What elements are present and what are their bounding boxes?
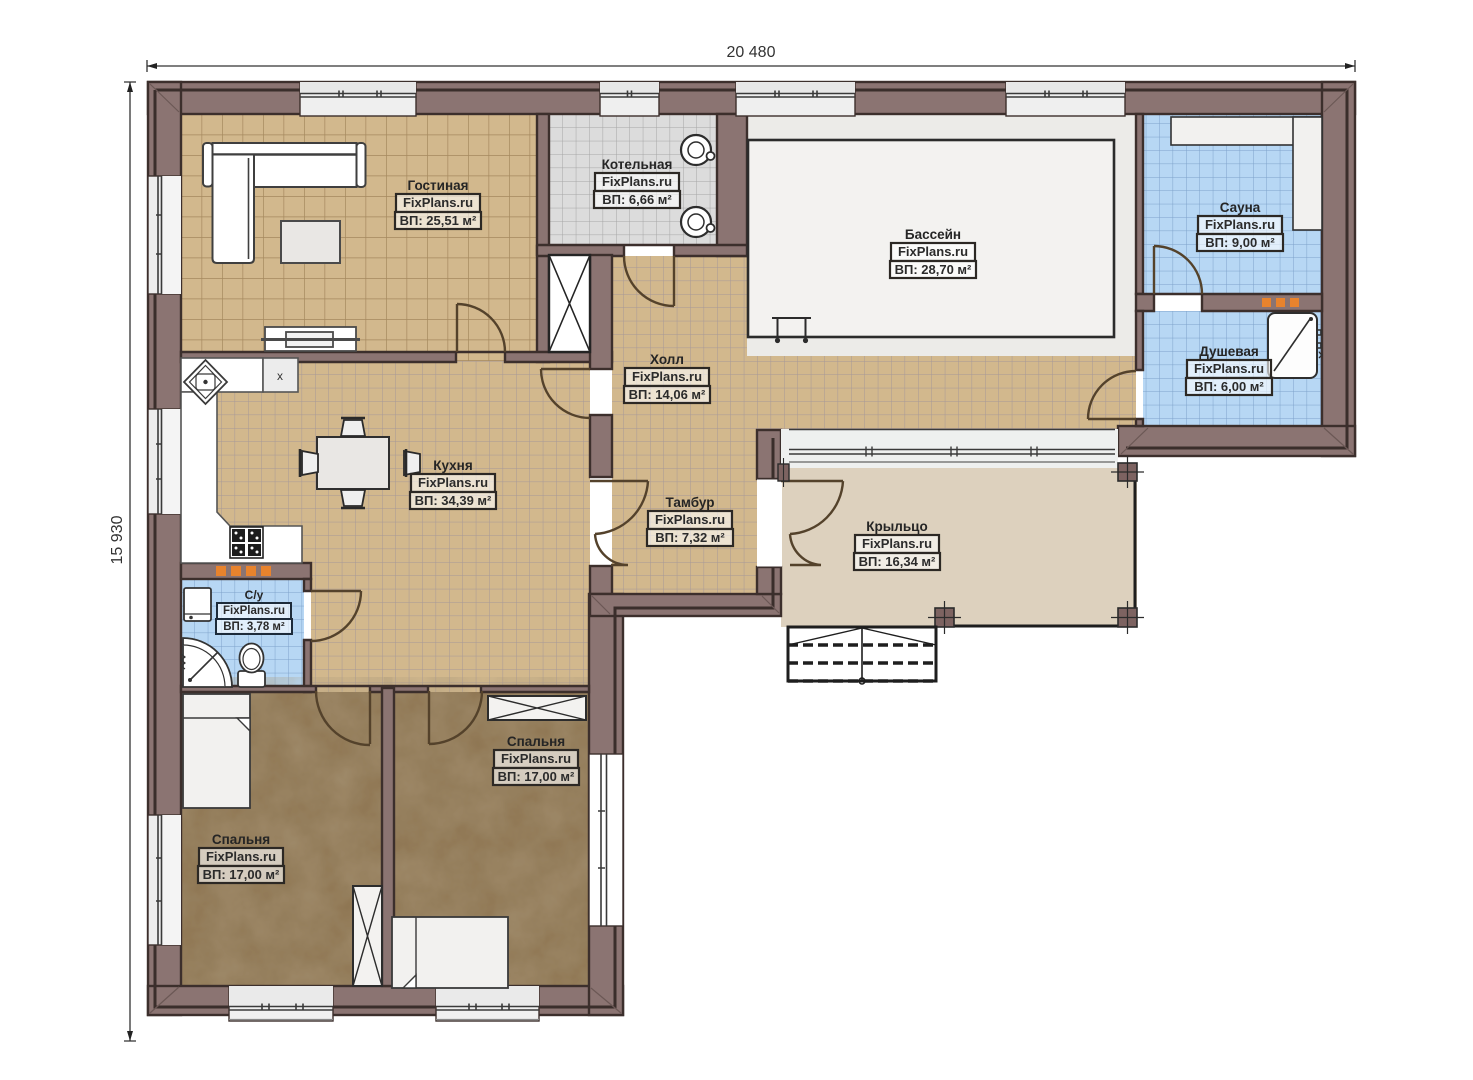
svg-text:Спальня: Спальня xyxy=(212,832,270,847)
svg-text:15 930: 15 930 xyxy=(109,515,126,564)
svg-text:FixPlans.ru: FixPlans.ru xyxy=(898,244,968,259)
svg-text:Бассейн: Бассейн xyxy=(905,227,961,242)
svg-text:ВП: 34,39 м²: ВП: 34,39 м² xyxy=(415,493,492,508)
svg-text:ВП: 3,78 м²: ВП: 3,78 м² xyxy=(223,621,285,633)
svg-text:FixPlans.ru: FixPlans.ru xyxy=(501,751,571,766)
svg-text:ВП: 7,32 м²: ВП: 7,32 м² xyxy=(655,530,725,545)
svg-text:ВП: 14,06 м²: ВП: 14,06 м² xyxy=(629,387,706,402)
svg-text:Кухня: Кухня xyxy=(433,458,472,473)
svg-text:ВП: 17,00 м²: ВП: 17,00 м² xyxy=(498,769,575,784)
svg-text:FixPlans.ru: FixPlans.ru xyxy=(223,605,285,617)
svg-text:FixPlans.ru: FixPlans.ru xyxy=(1194,361,1264,376)
svg-text:FixPlans.ru: FixPlans.ru xyxy=(632,369,702,384)
svg-text:ВП: 6,66 м²: ВП: 6,66 м² xyxy=(602,192,672,207)
svg-text:FixPlans.ru: FixPlans.ru xyxy=(206,849,276,864)
svg-text:FixPlans.ru: FixPlans.ru xyxy=(1205,217,1275,232)
svg-text:ВП: 9,00 м²: ВП: 9,00 м² xyxy=(1205,235,1275,250)
svg-text:Холл: Холл xyxy=(650,352,684,367)
svg-text:ВП: 6,00 м²: ВП: 6,00 м² xyxy=(1194,379,1264,394)
svg-text:Тамбур: Тамбур xyxy=(666,495,715,510)
svg-text:FixPlans.ru: FixPlans.ru xyxy=(655,512,725,527)
svg-text:Душевая: Душевая xyxy=(1199,344,1259,359)
svg-text:FixPlans.ru: FixPlans.ru xyxy=(418,475,488,490)
svg-text:ВП: 28,70 м²: ВП: 28,70 м² xyxy=(895,262,972,277)
svg-text:20 480: 20 480 xyxy=(727,44,776,61)
svg-text:ВП: 25,51 м²: ВП: 25,51 м² xyxy=(400,213,477,228)
svg-text:FixPlans.ru: FixPlans.ru xyxy=(862,536,932,551)
svg-text:С/у: С/у xyxy=(245,588,264,602)
svg-text:Крыльцо: Крыльцо xyxy=(866,519,927,534)
svg-text:Котельная: Котельная xyxy=(602,157,673,172)
svg-text:Сауна: Сауна xyxy=(1220,200,1261,215)
svg-text:Спальня: Спальня xyxy=(507,734,565,749)
svg-text:FixPlans.ru: FixPlans.ru xyxy=(403,195,473,210)
svg-text:FixPlans.ru: FixPlans.ru xyxy=(602,174,672,189)
svg-text:ВП: 16,34 м²: ВП: 16,34 м² xyxy=(859,554,936,569)
svg-text:ВП: 17,00 м²: ВП: 17,00 м² xyxy=(203,867,280,882)
svg-text:Гостиная: Гостиная xyxy=(407,178,468,193)
svg-text:x: x xyxy=(277,369,283,383)
